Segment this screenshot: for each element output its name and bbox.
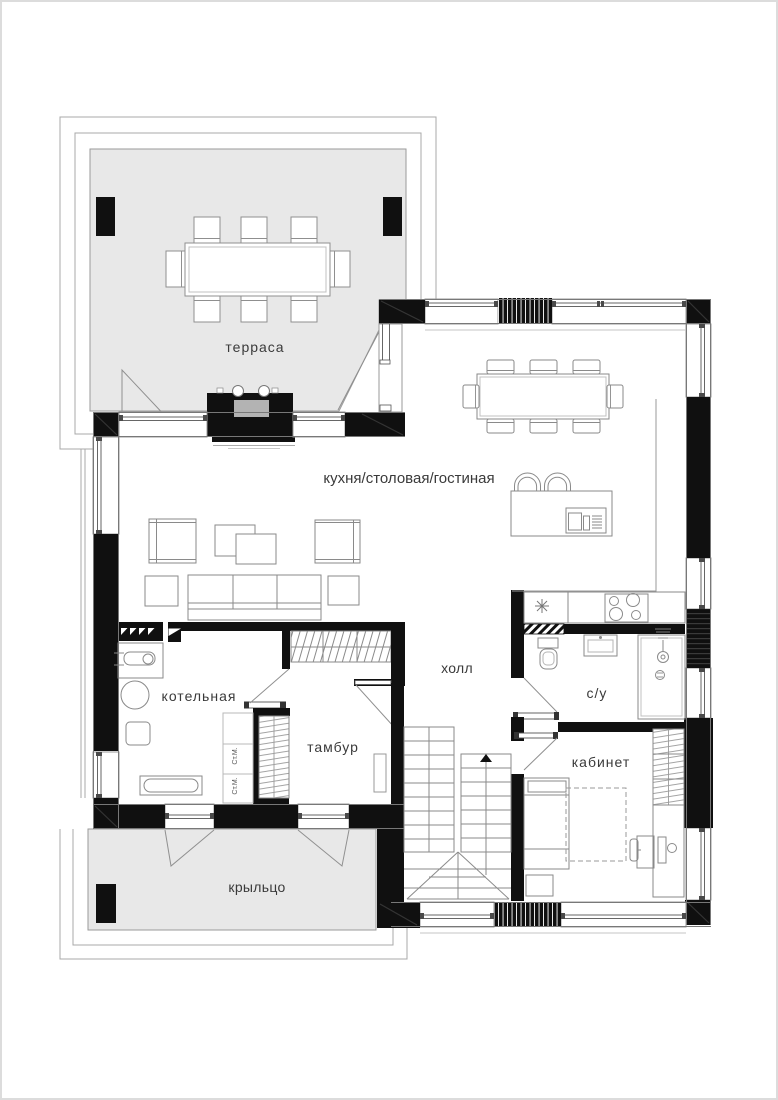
svg-text:кухня/столовая/гостиная: кухня/столовая/гостиная	[323, 470, 494, 487]
svg-text:крыльцо: крыльцо	[228, 879, 285, 895]
svg-text:котельная: котельная	[162, 688, 237, 704]
svg-text:терраса: терраса	[225, 339, 284, 355]
svg-text:холл: холл	[441, 660, 473, 676]
svg-text:с/у: с/у	[587, 685, 608, 701]
svg-text:тамбур: тамбур	[307, 739, 359, 755]
svg-text:Ст.М.: Ст.М.	[232, 777, 239, 794]
svg-text:Ст.М.: Ст.М.	[232, 747, 239, 764]
svg-text:кабинет: кабинет	[572, 754, 631, 770]
